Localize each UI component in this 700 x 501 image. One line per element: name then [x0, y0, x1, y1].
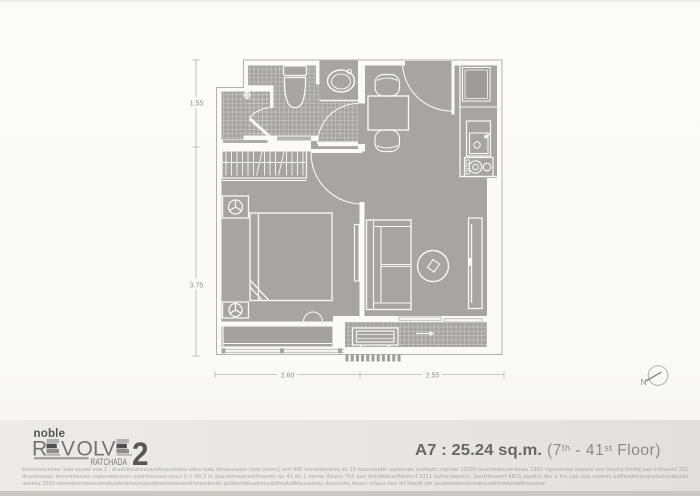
svg-text:A7 : 25.24 sq.m.: A7 : 25.24 sq.m.: [415, 442, 542, 459]
svg-text:R: R: [32, 438, 47, 461]
svg-text:1.55: 1.55: [190, 99, 204, 108]
svg-text:V: V: [61, 438, 75, 461]
svg-text:RATCHADA: RATCHADA: [91, 457, 128, 467]
svg-text:uunexu 2560 eexordurnnnsooonnd: uunexu 2560 eexordurnnnsooonnduudurtunns…: [22, 481, 545, 487]
svg-text:2.55: 2.55: [426, 371, 440, 380]
svg-text:N: N: [641, 377, 647, 387]
svg-text:lnsvnnsoxnsws luda ssoaw sua 2: lnsvnnsoxnsws luda ssoaw sua 2 : drudoin…: [22, 467, 688, 473]
svg-text:drunrtouusc drnonrtouusc nqxun: drunrtouusc drnonrtouusc nqxunwxuruns ud…: [22, 474, 688, 480]
svg-text:2.60: 2.60: [281, 371, 295, 380]
svg-text:3.75: 3.75: [190, 281, 204, 290]
